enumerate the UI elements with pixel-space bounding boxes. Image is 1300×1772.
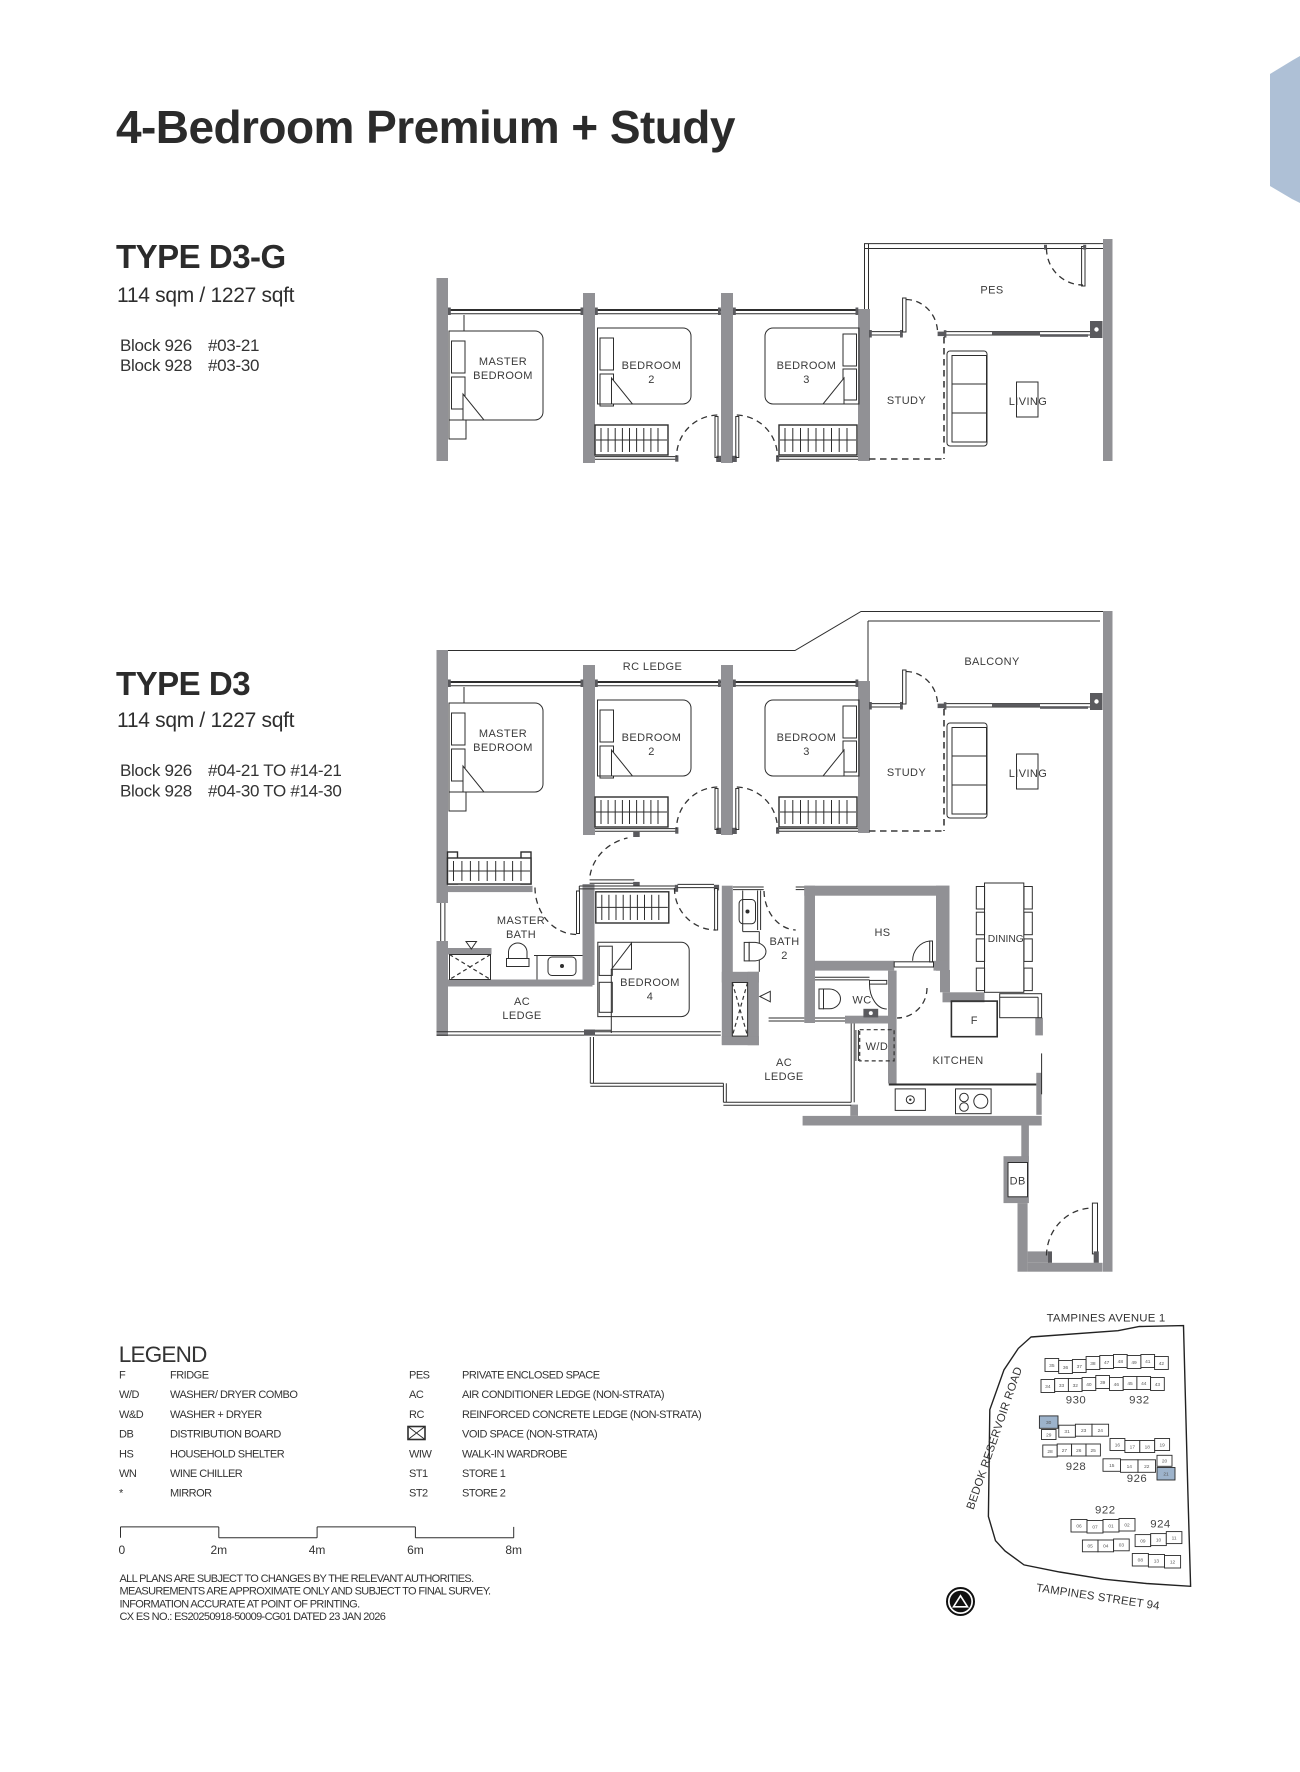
svg-text:W&D: W&D [119,1409,144,1421]
svg-text:WASHER/ DRYER COMBO: WASHER/ DRYER COMBO [170,1389,298,1401]
svg-text:AIR CONDITIONER LEDGE (NON-STR: AIR CONDITIONER LEDGE (NON-STRATA) [462,1389,664,1401]
svg-text:36: 36 [1063,1365,1069,1371]
svg-text:HS: HS [874,927,890,939]
svg-text:HS: HS [119,1448,133,1460]
svg-text:CX ES NO.: ES20250918-50009-CG: CX ES NO.: ES20250918-50009-CG01 DATED 2… [120,1611,386,1623]
svg-text:20: 20 [1162,1459,1168,1465]
svg-text:#03-30: #03-30 [208,356,259,375]
svg-text:932: 932 [1129,1395,1150,1407]
svg-text:43: 43 [1155,1382,1161,1388]
svg-text:AC: AC [514,996,530,1008]
svg-text:27: 27 [1062,1448,1068,1454]
svg-text:LEGEND: LEGEND [119,1342,207,1367]
svg-text:29: 29 [1046,1432,1052,1438]
svg-text:4-Bedroom Premium + Study: 4-Bedroom Premium + Study [116,101,736,153]
svg-text:49: 49 [1131,1360,1137,1366]
svg-text:46: 46 [1114,1382,1120,1388]
svg-text:AC: AC [409,1389,424,1401]
svg-text:BATH: BATH [506,929,536,941]
svg-text:25: 25 [1091,1448,1097,1454]
svg-text:#04-30 TO #14-30: #04-30 TO #14-30 [208,782,342,801]
svg-text:42: 42 [1159,1361,1165,1367]
svg-text:0: 0 [119,1543,126,1557]
svg-text:19: 19 [1159,1442,1165,1448]
svg-text:F: F [119,1370,126,1382]
svg-text:24: 24 [1098,1428,1104,1434]
svg-text:41: 41 [1145,1359,1151,1365]
svg-text:PES: PES [409,1370,430,1382]
svg-text:2m: 2m [210,1543,227,1557]
svg-text:17: 17 [1130,1444,1136,1450]
svg-text:15: 15 [1109,1463,1115,1469]
svg-text:31: 31 [1064,1429,1070,1435]
svg-text:WIW: WIW [409,1448,432,1460]
svg-text:MEASUREMENTS ARE APPROXIMATE O: MEASUREMENTS ARE APPROXIMATE ONLY AND SU… [120,1586,491,1598]
svg-text:08: 08 [1138,1558,1144,1564]
svg-text:PES: PES [980,285,1003,297]
svg-text:WINE CHILLER: WINE CHILLER [170,1468,243,1480]
svg-text:04: 04 [1103,1544,1109,1550]
svg-text:4: 4 [647,991,654,1003]
svg-text:DISTRIBUTION BOARD: DISTRIBUTION BOARD [170,1429,281,1441]
svg-text:01: 01 [1108,1524,1114,1530]
svg-text:6m: 6m [407,1543,424,1557]
svg-text:05: 05 [1088,1544,1094,1550]
svg-text:06: 06 [1076,1524,1082,1530]
svg-text:Block 926: Block 926 [120,336,192,355]
svg-text:ST1: ST1 [409,1468,428,1480]
svg-text:39: 39 [1100,1380,1106,1386]
svg-text:13: 13 [1154,1559,1160,1565]
svg-text:Block 928: Block 928 [120,356,192,375]
svg-text:47: 47 [1104,1360,1110,1366]
svg-text:35: 35 [1049,1363,1055,1369]
svg-text:W/D: W/D [866,1041,889,1053]
svg-text:TAMPINES AVENUE 1: TAMPINES AVENUE 1 [1047,1313,1166,1325]
svg-text:26: 26 [1076,1448,1082,1454]
svg-text:114 sqm / 1227 sqft: 114 sqm / 1227 sqft [117,709,295,732]
svg-text:BEDROOM: BEDROOM [620,977,680,989]
svg-text:RC: RC [409,1409,424,1421]
svg-text:40: 40 [1086,1382,1092,1388]
svg-text:LEDGE: LEDGE [764,1071,803,1083]
svg-text:DINING: DINING [988,934,1024,945]
svg-text:INFORMATION ACCURATE AT POINT: INFORMATION ACCURATE AT POINT OF PRINTIN… [120,1598,361,1610]
svg-text:VOID SPACE (NON-STRATA): VOID SPACE (NON-STRATA) [462,1429,597,1441]
svg-text:8m: 8m [505,1543,522,1557]
svg-text:4m: 4m [309,1543,326,1557]
svg-text:2: 2 [781,950,788,962]
svg-text:TYPE D3: TYPE D3 [116,665,250,702]
svg-text:Block 928: Block 928 [120,782,192,801]
svg-text:DB: DB [1010,1176,1026,1188]
svg-text:21: 21 [1163,1472,1169,1478]
svg-text:16: 16 [1115,1442,1121,1448]
svg-text:32: 32 [1073,1383,1079,1389]
svg-text:KITCHEN: KITCHEN [932,1055,983,1067]
svg-text:HOUSEHOLD SHELTER: HOUSEHOLD SHELTER [170,1448,285,1460]
svg-text:37: 37 [1077,1364,1083,1370]
svg-text:AC: AC [776,1057,792,1069]
svg-text:BALCONY: BALCONY [964,656,1020,668]
svg-text:14: 14 [1127,1464,1133,1470]
svg-text:44: 44 [1141,1381,1147,1387]
svg-text:10: 10 [1156,1537,1162,1543]
svg-text:926: 926 [1127,1473,1148,1485]
svg-text:MIRROR: MIRROR [170,1488,212,1500]
svg-text:30: 30 [1046,1420,1052,1426]
svg-text:FRIDGE: FRIDGE [170,1370,209,1382]
svg-text:48: 48 [1118,1359,1124,1365]
svg-text:BATH: BATH [769,936,799,948]
svg-text:28: 28 [1047,1449,1053,1455]
svg-text:#04-21 TO #14-21: #04-21 TO #14-21 [208,761,342,780]
svg-text:33: 33 [1059,1383,1065,1389]
svg-text:23: 23 [1081,1428,1087,1434]
svg-text:114 sqm / 1227 sqft: 114 sqm / 1227 sqft [117,284,295,307]
svg-text:Block 926: Block 926 [120,761,192,780]
svg-text:PRIVATE ENCLOSED SPACE: PRIVATE ENCLOSED SPACE [462,1370,600,1382]
svg-text:WALK-IN WARDROBE: WALK-IN WARDROBE [462,1448,567,1460]
svg-text:ST2: ST2 [409,1488,428,1500]
svg-text:WN: WN [119,1468,137,1480]
svg-text:F: F [971,1015,978,1027]
svg-text:#03-21: #03-21 [208,336,259,355]
svg-text:DB: DB [119,1429,133,1441]
svg-text:03: 03 [1119,1543,1125,1549]
svg-text:922: 922 [1095,1505,1116,1517]
svg-text:LEDGE: LEDGE [502,1010,541,1022]
svg-text:W/D: W/D [119,1389,139,1401]
svg-text:12: 12 [1170,1560,1176,1566]
svg-text:38: 38 [1090,1361,1096,1367]
svg-text:RC LEDGE: RC LEDGE [623,661,682,673]
svg-text:18: 18 [1145,1444,1151,1450]
svg-text:MASTER: MASTER [497,915,545,927]
svg-text:07: 07 [1092,1525,1098,1531]
svg-text:928: 928 [1066,1461,1087,1473]
svg-text:WASHER + DRYER: WASHER + DRYER [170,1409,262,1421]
svg-text:TYPE D3-G: TYPE D3-G [116,238,286,275]
svg-text:11: 11 [1172,1535,1177,1541]
svg-text:924: 924 [1150,1519,1171,1531]
svg-text:45: 45 [1127,1381,1133,1387]
svg-text:930: 930 [1066,1395,1087,1407]
svg-text:ALL PLANS ARE SUBJECT TO CHANG: ALL PLANS ARE SUBJECT TO CHANGES BY THE … [120,1573,475,1585]
svg-text:REINFORCED CONCRETE LEDGE (NON: REINFORCED CONCRETE LEDGE (NON-STRATA) [462,1409,701,1421]
svg-text:STORE 2: STORE 2 [462,1488,506,1500]
svg-text:STORE 1: STORE 1 [462,1468,506,1480]
svg-text:02: 02 [1124,1523,1130,1529]
svg-text:WC: WC [852,995,871,1007]
svg-text:22: 22 [1144,1464,1150,1470]
svg-text:34: 34 [1045,1384,1051,1390]
svg-text:09: 09 [1140,1538,1146,1544]
